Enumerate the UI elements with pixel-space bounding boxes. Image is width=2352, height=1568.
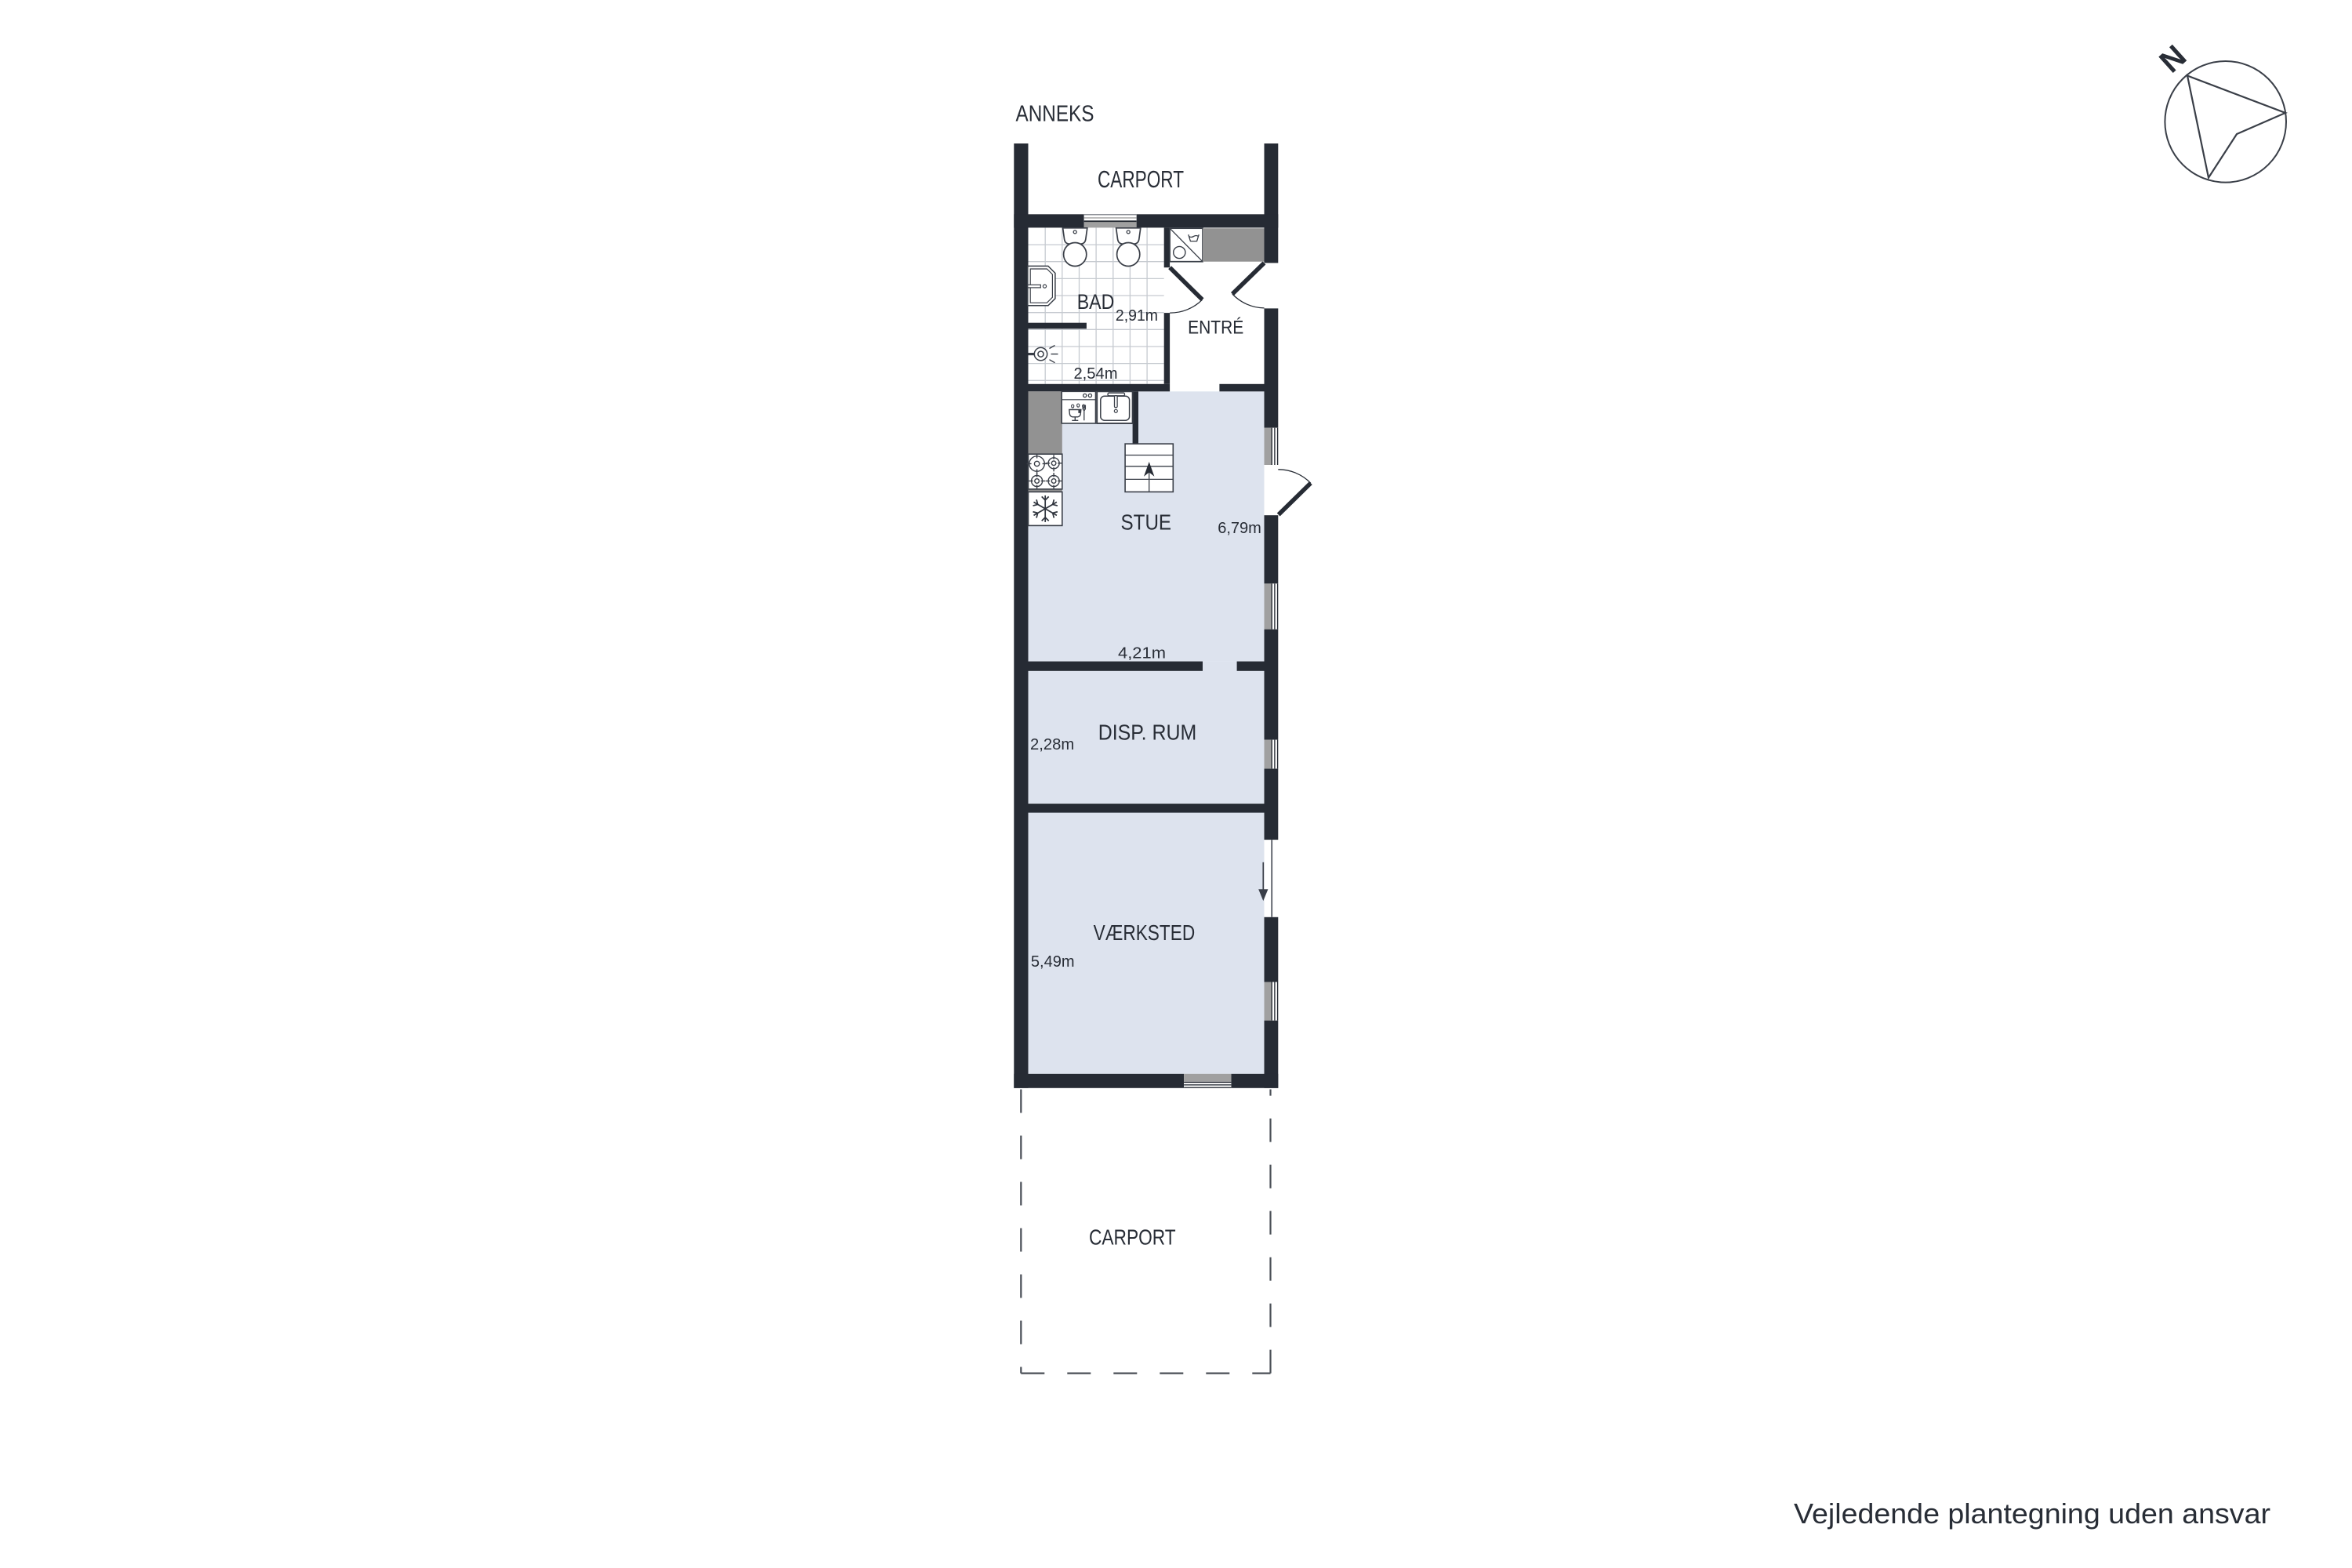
svg-text:BAD: BAD bbox=[1077, 290, 1115, 314]
svg-text:5,49m: 5,49m bbox=[1031, 953, 1075, 971]
svg-text:DISP. RUM: DISP. RUM bbox=[1098, 720, 1197, 745]
svg-text:CARPORT: CARPORT bbox=[1098, 165, 1184, 193]
svg-text:ANNEKS: ANNEKS bbox=[1016, 102, 1094, 127]
svg-text:VÆRKSTED: VÆRKSTED bbox=[1094, 920, 1196, 945]
svg-text:CARPORT: CARPORT bbox=[1089, 1225, 1176, 1250]
svg-text:STUE: STUE bbox=[1121, 510, 1172, 534]
svg-text:Vejledende plantegning uden an: Vejledende plantegning uden ansvar bbox=[1794, 1497, 2270, 1530]
svg-text:6,79m: 6,79m bbox=[1218, 519, 1261, 537]
svg-text:2,28m: 2,28m bbox=[1030, 735, 1074, 753]
svg-text:ENTRÉ: ENTRÉ bbox=[1188, 318, 1243, 339]
svg-text:2,54m: 2,54m bbox=[1073, 365, 1117, 383]
svg-text:4,21m: 4,21m bbox=[1118, 644, 1166, 662]
svg-text:2,91m: 2,91m bbox=[1116, 307, 1158, 325]
